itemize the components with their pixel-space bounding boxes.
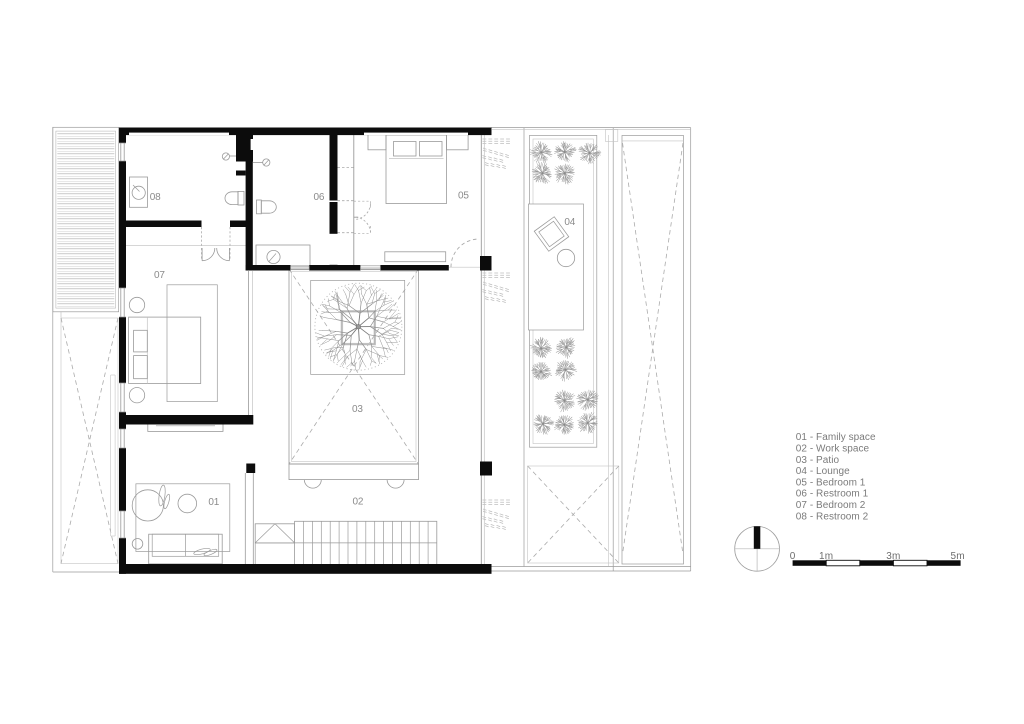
svg-text:05: 05: [458, 190, 469, 201]
svg-text:5m: 5m: [950, 551, 964, 562]
svg-text:06 - Restroom 1: 06 - Restroom 1: [796, 489, 869, 500]
svg-text:03: 03: [352, 404, 363, 415]
svg-text:3m: 3m: [886, 551, 900, 562]
svg-text:04 - Lounge: 04 - Lounge: [796, 466, 850, 477]
svg-text:06: 06: [314, 192, 325, 203]
svg-text:07: 07: [154, 270, 165, 281]
svg-text:04: 04: [564, 217, 575, 228]
svg-text:02: 02: [353, 497, 364, 508]
svg-text:05 - Bedroom 1: 05 - Bedroom 1: [796, 477, 866, 488]
svg-text:03 - Patio: 03 - Patio: [796, 455, 840, 466]
svg-text:1m: 1m: [819, 551, 833, 562]
svg-text:08: 08: [150, 192, 161, 203]
svg-text:01: 01: [208, 497, 219, 508]
svg-text:07 - Bedroom 2: 07 - Bedroom 2: [796, 500, 866, 511]
svg-text:08 - Restroom 2: 08 - Restroom 2: [796, 511, 869, 522]
svg-text:01 - Family space: 01 - Family space: [796, 432, 876, 443]
svg-text:02 - Work space: 02 - Work space: [796, 444, 870, 455]
svg-text:0: 0: [790, 551, 796, 562]
